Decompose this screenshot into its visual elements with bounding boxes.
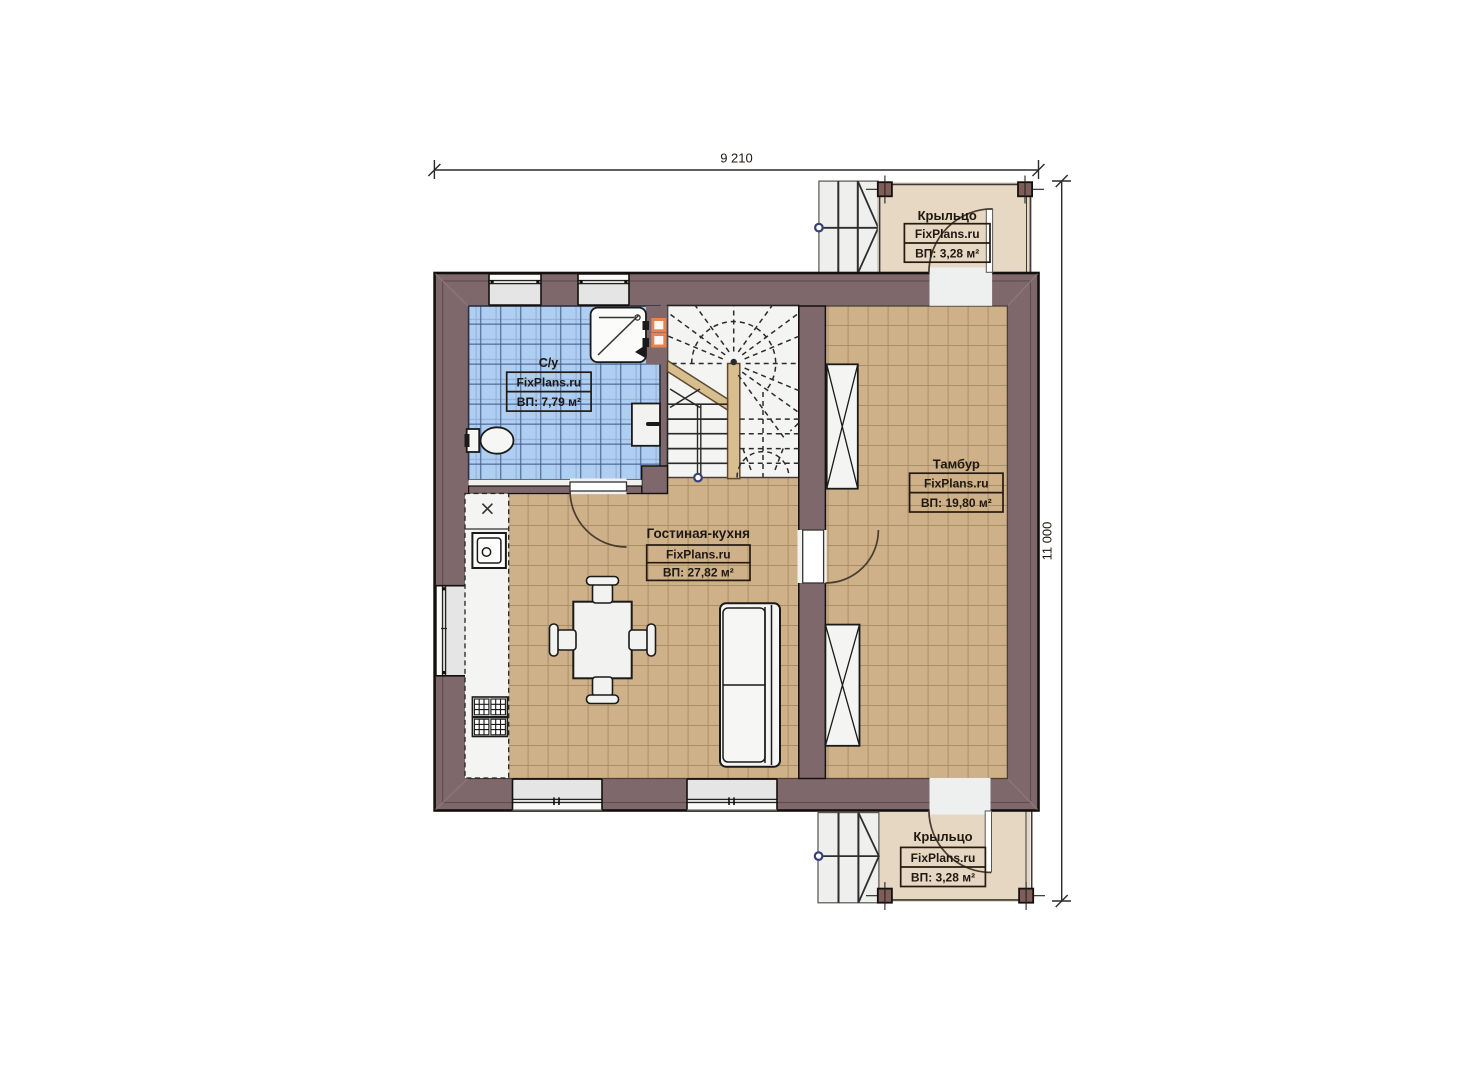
- svg-text:ВП: 27,82 м²: ВП: 27,82 м²: [663, 565, 734, 579]
- svg-text:ВП: 7,79 м²: ВП: 7,79 м²: [517, 395, 581, 409]
- svg-text:ВП: 19,80 м²: ВП: 19,80 м²: [921, 496, 992, 510]
- svg-text:Крыльцо: Крыльцо: [913, 829, 972, 844]
- svg-text:FixPlans.ru: FixPlans.ru: [911, 851, 976, 865]
- svg-text:FixPlans.ru: FixPlans.ru: [924, 477, 989, 491]
- svg-text:9 210: 9 210: [720, 151, 753, 166]
- svg-text:FixPlans.ru: FixPlans.ru: [915, 227, 980, 241]
- svg-text:С/у: С/у: [539, 356, 559, 370]
- svg-text:11 000: 11 000: [1040, 522, 1055, 561]
- svg-text:ВП: 3,28 м²: ВП: 3,28 м²: [911, 871, 975, 885]
- svg-text:Крыльцо: Крыльцо: [918, 208, 977, 223]
- svg-text:ВП: 3,28 м²: ВП: 3,28 м²: [915, 247, 979, 261]
- svg-text:FixPlans.ru: FixPlans.ru: [517, 376, 582, 390]
- svg-text:FixPlans.ru: FixPlans.ru: [666, 548, 731, 562]
- svg-text:Тамбур: Тамбур: [933, 457, 980, 472]
- svg-text:Гостиная-кухня: Гостиная-кухня: [647, 526, 750, 541]
